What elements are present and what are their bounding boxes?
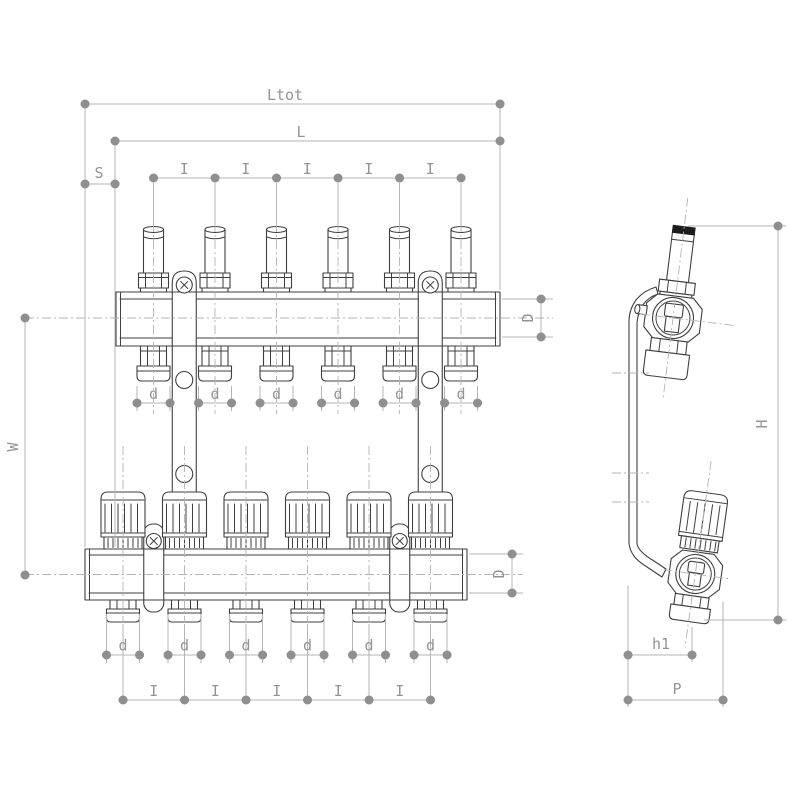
label-l: L xyxy=(296,123,305,141)
label-h: H xyxy=(753,419,771,428)
front-view xyxy=(85,227,500,623)
label-big-d-upper: D xyxy=(519,313,537,322)
technical-drawing: Ltot L S I I I I I d d d d d d D W D d d… xyxy=(0,0,800,800)
label-i-bottom: I xyxy=(272,682,281,700)
label-d-top: d xyxy=(210,385,219,403)
label-ltot: Ltot xyxy=(267,86,303,104)
label-d-top: d xyxy=(333,385,342,403)
label-d-top: d xyxy=(456,385,465,403)
manifold-clamp xyxy=(144,524,164,612)
label-d-top: d xyxy=(395,385,404,403)
label-p: P xyxy=(672,680,681,698)
label-d-bottom: d xyxy=(180,637,189,655)
label-s: S xyxy=(94,164,103,182)
side-valve-knob xyxy=(653,457,745,652)
label-i-top: I xyxy=(426,160,435,178)
label-d-bottom: d xyxy=(118,637,127,655)
label-i-bottom: I xyxy=(334,682,343,700)
label-d-bottom: d xyxy=(426,637,435,655)
label-d-top: d xyxy=(149,385,158,403)
label-w: W xyxy=(4,442,22,452)
label-h1: h1 xyxy=(652,635,670,653)
label-big-d-lower: D xyxy=(490,569,508,578)
label-i-top: I xyxy=(364,160,373,178)
label-i-top: I xyxy=(241,160,250,178)
manifold-clamp xyxy=(390,524,410,612)
label-d-top: d xyxy=(272,385,281,403)
drawing-page: Ltot L S I I I I I d d d d d d D W D d d… xyxy=(0,0,800,800)
side-view xyxy=(624,193,748,652)
label-d-bottom: d xyxy=(303,637,312,655)
label-i-bottom: I xyxy=(395,682,404,700)
label-i-bottom: I xyxy=(149,682,158,700)
label-d-bottom: d xyxy=(364,637,373,655)
label-d-bottom: d xyxy=(241,637,250,655)
label-i-top: I xyxy=(180,160,189,178)
label-i-bottom: I xyxy=(211,682,220,700)
label-i-top: I xyxy=(303,160,312,178)
